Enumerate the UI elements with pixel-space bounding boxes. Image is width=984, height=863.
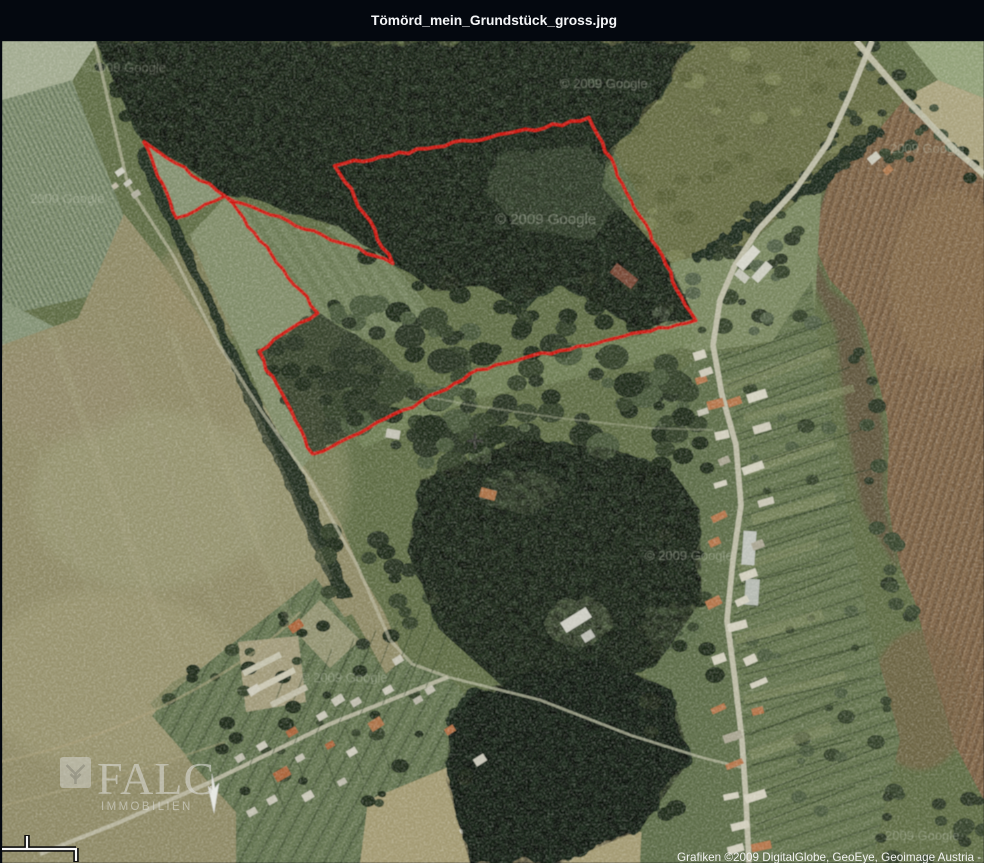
svg-text:IMMOBILIEN: IMMOBILIEN [101,801,193,813]
svg-text:Tömörd_mein_Grundstück_gross.j: Tömörd_mein_Grundstück_gross.jpg [371,13,617,28]
svg-text:FALC: FALC [97,753,215,804]
svg-text:Grafiken ©2009 DigitalGlobe, G: Grafiken ©2009 DigitalGlobe, GeoEye, Geo… [677,851,984,863]
